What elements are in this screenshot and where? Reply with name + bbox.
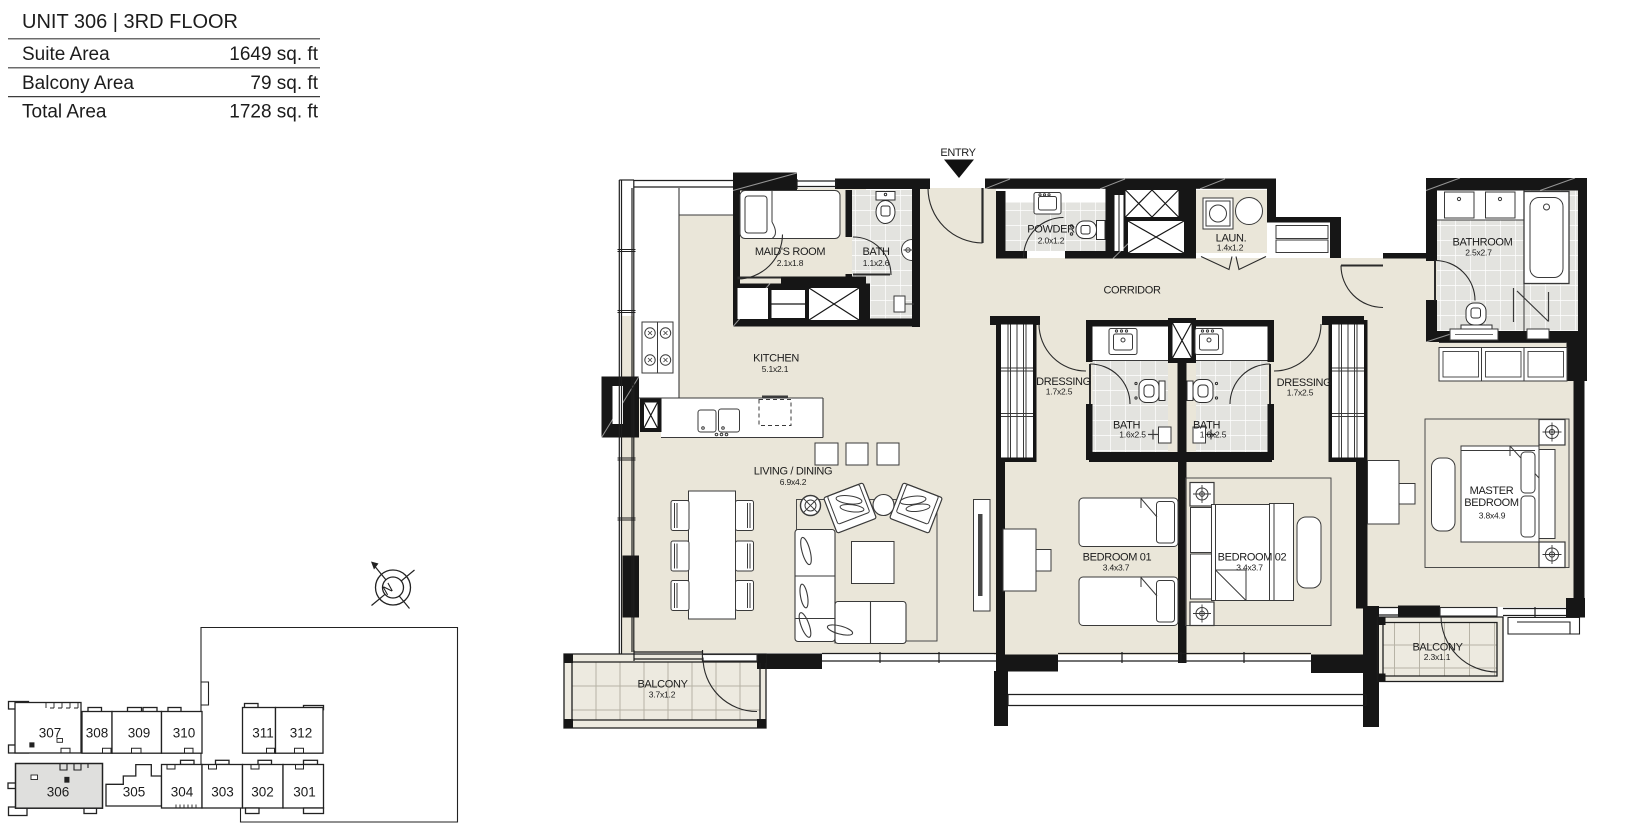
svg-text:79 sq. ft: 79 sq. ft: [250, 73, 318, 94]
svg-text:MASTER: MASTER: [1470, 485, 1514, 497]
svg-text:ENTRY: ENTRY: [940, 147, 976, 159]
svg-text:BATH: BATH: [862, 246, 890, 258]
svg-text:308: 308: [86, 726, 109, 741]
svg-text:302: 302: [251, 785, 274, 800]
svg-text:1.6x2.5: 1.6x2.5: [1119, 430, 1146, 440]
svg-text:1.4x1.2: 1.4x1.2: [1217, 243, 1244, 253]
svg-text:1649 sq. ft: 1649 sq. ft: [229, 44, 318, 65]
svg-text:CORRIDOR: CORRIDOR: [1103, 285, 1160, 297]
svg-text:5.1x2.1: 5.1x2.1: [762, 364, 789, 374]
svg-text:301: 301: [293, 785, 316, 800]
svg-text:312: 312: [290, 726, 313, 741]
svg-text:3.4x3.7: 3.4x3.7: [1236, 563, 1263, 573]
svg-text:1.7x2.5: 1.7x2.5: [1046, 387, 1073, 397]
svg-text:2.5x2.7: 2.5x2.7: [1465, 248, 1492, 258]
svg-text:POWDER: POWDER: [1027, 224, 1075, 236]
svg-text:2.0x1.2: 2.0x1.2: [1038, 236, 1065, 246]
svg-text:1.6x2.5: 1.6x2.5: [1200, 430, 1227, 440]
svg-text:Suite Area: Suite Area: [22, 44, 110, 65]
svg-text:2.3x1.1: 2.3x1.1: [1424, 652, 1451, 662]
svg-text:LIVING / DINING: LIVING / DINING: [754, 466, 833, 478]
svg-text:306: 306: [47, 785, 70, 800]
svg-text:303: 303: [211, 785, 234, 800]
svg-text:KITCHEN: KITCHEN: [753, 353, 799, 365]
svg-text:Total Area: Total Area: [22, 102, 107, 123]
svg-text:BEDROOM: BEDROOM: [1464, 497, 1519, 509]
svg-text:Balcony Area: Balcony Area: [22, 73, 134, 94]
svg-text:310: 310: [173, 726, 196, 741]
svg-text:307: 307: [39, 726, 62, 741]
svg-text:1.1x2.6: 1.1x2.6: [863, 258, 890, 268]
svg-text:305: 305: [123, 785, 146, 800]
svg-text:311: 311: [252, 726, 274, 741]
svg-text:1.7x2.5: 1.7x2.5: [1287, 388, 1314, 398]
svg-text:304: 304: [171, 785, 194, 800]
svg-text:2.1x1.8: 2.1x1.8: [777, 258, 804, 268]
svg-text:UNIT 306 | 3RD FLOOR: UNIT 306 | 3RD FLOOR: [22, 11, 238, 33]
svg-text:309: 309: [128, 726, 151, 741]
svg-text:MAID'S ROOM: MAID'S ROOM: [755, 246, 826, 258]
svg-text:6.9x4.2: 6.9x4.2: [780, 477, 807, 487]
svg-text:3.7x1.2: 3.7x1.2: [649, 690, 676, 700]
svg-text:3.8x4.9: 3.8x4.9: [1479, 511, 1506, 521]
svg-text:3.4x3.7: 3.4x3.7: [1103, 563, 1130, 573]
svg-text:1728 sq. ft: 1728 sq. ft: [229, 102, 318, 123]
